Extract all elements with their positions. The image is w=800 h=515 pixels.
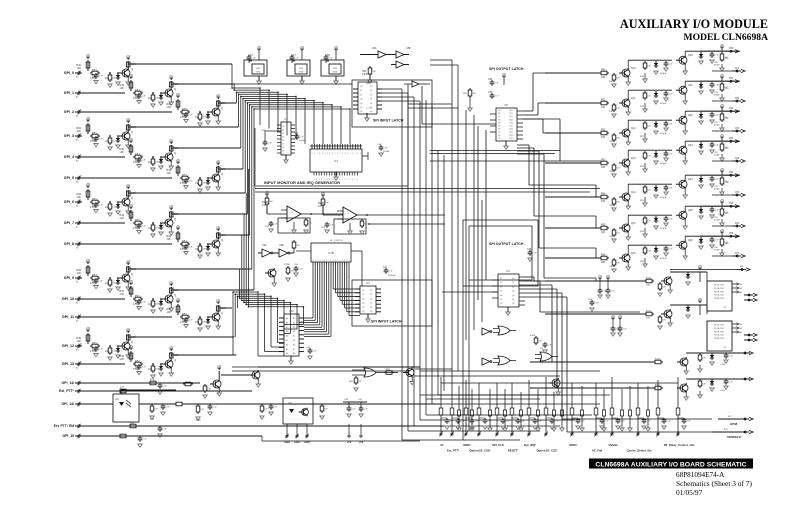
svg-text:+5V: +5V: [86, 117, 91, 120]
svg-text:D1: D1: [498, 113, 500, 115]
svg-text:10K: 10K: [601, 76, 606, 79]
svg-text:R51: R51: [92, 68, 97, 72]
svg-text:3: 3: [342, 260, 343, 262]
svg-text:2: 2: [317, 153, 318, 155]
svg-text:GND: GND: [304, 440, 310, 444]
svg-text:6: 6: [327, 153, 328, 155]
svg-text:10K: 10K: [105, 140, 110, 143]
svg-text:GPI_5: GPI_5: [64, 176, 74, 180]
svg-text:10K: 10K: [166, 171, 171, 175]
svg-text:D0: D0: [370, 290, 372, 292]
svg-text:R51: R51: [182, 239, 187, 243]
svg-text:7: 7: [329, 153, 330, 155]
svg-text:10K: 10K: [148, 227, 153, 230]
svg-text:D6: D6: [500, 303, 502, 305]
svg-text:10K: 10K: [148, 303, 153, 306]
svg-text:D4: D4: [282, 140, 284, 142]
svg-text:Q13: Q13: [631, 157, 636, 160]
svg-text:470pF: 470pF: [714, 155, 720, 157]
svg-text:R76: R76: [150, 379, 155, 382]
svg-text:OQ4: OQ4: [509, 122, 513, 124]
svg-text:10K: 10K: [105, 282, 110, 285]
svg-text:OQ0: OQ0: [509, 110, 513, 112]
svg-text:10K: 10K: [609, 266, 613, 268]
svg-text:470pF: 470pF: [133, 227, 140, 230]
svg-text:D5: D5: [500, 299, 502, 301]
svg-text:10K: 10K: [166, 237, 171, 241]
svg-text:10K: 10K: [174, 147, 179, 150]
svg-text:10K: 10K: [195, 182, 200, 185]
svg-text:R110: R110: [655, 359, 661, 361]
svg-text:D1: D1: [370, 90, 372, 92]
svg-text:10K: 10K: [105, 206, 110, 209]
svg-text:Carrier_Detect_Sw: Carrier_Detect_Sw: [627, 449, 653, 453]
svg-text:+5V: +5V: [611, 315, 616, 318]
svg-text:3: 3: [345, 153, 346, 155]
svg-text:+5V: +5V: [720, 104, 725, 107]
svg-text:R51: R51: [92, 341, 97, 345]
svg-text:Q: Q: [131, 340, 133, 344]
svg-text:1: 1: [337, 260, 338, 262]
svg-text:2: 2: [340, 260, 341, 262]
svg-text:+5V: +5V: [598, 275, 603, 278]
svg-text:Q: Q: [131, 67, 133, 71]
svg-text:GPI_4: GPI_4: [64, 155, 74, 159]
svg-text:10K: 10K: [601, 231, 606, 234]
svg-text:U2: U2: [284, 117, 288, 121]
svg-text:10K: 10K: [131, 336, 136, 339]
svg-text:F66: F66: [735, 222, 740, 225]
svg-text:OQ9: OQ9: [509, 138, 513, 140]
svg-text:CLN6698A AUXILIARY I/O BOARD S: CLN6698A AUXILIARY I/O BOARD SCHEMATIC: [595, 461, 746, 468]
svg-text:A2: A2: [740, 287, 742, 290]
svg-text:6: 6: [349, 260, 350, 262]
svg-text:10K: 10K: [609, 205, 613, 207]
svg-text:470pF: 470pF: [90, 350, 97, 353]
svg-text:Q: Q: [131, 130, 133, 134]
svg-text:4: 4: [344, 260, 345, 262]
svg-text:D3: D3: [500, 291, 502, 293]
svg-text:GPI_6: GPI_6: [64, 200, 74, 204]
svg-text:470pF: 470pF: [180, 321, 187, 324]
svg-text:GPI_10: GPI_10: [62, 297, 74, 301]
svg-text:470pF: 470pF: [660, 103, 667, 105]
svg-text:470pF: 470pF: [660, 133, 667, 135]
svg-text:Q3: Q3: [360, 99, 362, 101]
svg-text:68P81094E74-A: 68P81094E74-A: [676, 471, 725, 479]
svg-text:470pF: 470pF: [133, 303, 140, 306]
svg-text:GND: GND: [333, 72, 338, 74]
svg-text:+5V: +5V: [606, 275, 611, 278]
svg-text:10K: 10K: [174, 83, 179, 86]
svg-text:R112: R112: [646, 278, 652, 280]
svg-text:10K: 10K: [601, 261, 606, 264]
svg-text:SPI INPUT LATCH: SPI INPUT LATCH: [371, 320, 402, 324]
svg-text:B3: B3: [293, 331, 295, 333]
svg-text:NO1A CM1: NO1A CM1: [714, 287, 725, 290]
svg-text:GPI_2: GPI_2: [64, 110, 74, 114]
svg-text:10K: 10K: [609, 81, 613, 83]
svg-text:4: 4: [342, 179, 343, 181]
svg-text:Q6: Q6: [360, 111, 362, 113]
svg-text:A2: A2: [740, 327, 742, 330]
svg-text:GPI_13: GPI_13: [62, 362, 74, 366]
svg-text:GPI_3: GPI_3: [64, 134, 74, 138]
svg-text:A3: A3: [286, 330, 288, 333]
svg-text:3: 3: [319, 260, 320, 262]
svg-text:01/05/97: 01/05/97: [676, 488, 703, 497]
svg-text:D4: D4: [370, 307, 372, 309]
svg-text:R65: R65: [601, 224, 606, 227]
svg-text:10K: 10K: [609, 236, 613, 238]
svg-text:D5: D5: [282, 144, 284, 146]
svg-text:P64: P64: [729, 171, 734, 174]
svg-text:470pF: 470pF: [90, 206, 97, 209]
svg-text:Q2: Q2: [362, 298, 364, 300]
svg-text:Opt_IRQ*: Opt_IRQ*: [524, 443, 537, 447]
svg-text:10K: 10K: [609, 111, 613, 113]
svg-text:5: 5: [324, 153, 325, 155]
svg-text:+5V: +5V: [169, 205, 174, 208]
svg-text:+5V: +5V: [176, 225, 181, 228]
svg-text:+5V: +5V: [216, 94, 221, 97]
svg-text:A7: A7: [286, 348, 288, 351]
svg-text:100K: 100K: [362, 73, 368, 76]
svg-text:C96: C96: [527, 248, 532, 251]
svg-text:B8: B8: [293, 353, 295, 355]
svg-text:U1: U1: [334, 159, 338, 163]
svg-text:U8B: U8B: [406, 47, 411, 50]
svg-text:Option1/2_CS0*: Option1/2_CS0*: [470, 449, 492, 453]
svg-text:+5V: +5V: [86, 183, 91, 186]
svg-text:NO1A CM1: NO1A CM1: [714, 334, 725, 337]
svg-text:B0: B0: [293, 318, 295, 320]
svg-text:A1: A1: [286, 321, 288, 324]
svg-text:R51: R51: [135, 218, 140, 222]
svg-text:D8: D8: [498, 135, 500, 137]
svg-text:B1: B1: [293, 322, 295, 324]
svg-text:6: 6: [347, 179, 348, 181]
svg-text:10K: 10K: [609, 141, 613, 143]
svg-text:10K: 10K: [131, 268, 136, 271]
svg-text:Q4: Q4: [360, 103, 362, 105]
svg-text:10K: 10K: [131, 126, 136, 129]
svg-text:10K: 10K: [131, 63, 136, 66]
svg-text:Q24: Q24: [688, 178, 693, 181]
svg-text:9: 9: [354, 179, 355, 181]
svg-text:10K: 10K: [76, 339, 81, 343]
svg-text:Q3: Q3: [362, 303, 364, 305]
svg-text:GPI_11: GPI_11: [62, 315, 74, 319]
svg-text:0: 0: [313, 260, 314, 262]
svg-text:D3: D3: [282, 137, 284, 139]
svg-text:U6A: U6A: [262, 244, 267, 247]
svg-text:3: 3: [319, 153, 320, 155]
svg-text:Q: Q: [174, 293, 176, 297]
svg-text:SPI OUTPUT LATCH: SPI OUTPUT LATCH: [489, 242, 524, 246]
svg-text:R62: R62: [601, 129, 606, 132]
svg-text:Q0: Q0: [360, 86, 362, 88]
svg-text:AC_Fail: AC_Fail: [592, 449, 603, 453]
svg-text:470pF: 470pF: [660, 258, 667, 260]
svg-text:D7: D7: [498, 132, 500, 134]
svg-text:Q20: Q20: [688, 54, 693, 57]
svg-text:R51: R51: [182, 312, 187, 316]
svg-text:Ext_PTT*: Ext_PTT*: [447, 449, 460, 453]
svg-text:Q6: Q6: [512, 303, 514, 305]
svg-text:Q2: Q2: [360, 94, 362, 96]
svg-text:9: 9: [333, 260, 334, 262]
svg-text:D0: D0: [498, 110, 500, 112]
svg-text:8: 8: [352, 179, 353, 181]
svg-text:Q: Q: [221, 106, 223, 110]
svg-text:S_CLK: S_CLK: [366, 108, 372, 110]
svg-text:GP08: GP08: [730, 422, 738, 426]
svg-text:C47: C47: [383, 266, 388, 269]
svg-text:D3: D3: [370, 99, 372, 101]
svg-text:+5V: +5V: [216, 299, 221, 302]
svg-text:Q: Q: [131, 272, 133, 276]
svg-text:10K: 10K: [119, 292, 124, 296]
svg-text:10K: 10K: [221, 307, 226, 310]
svg-text:10K: 10K: [609, 171, 613, 173]
svg-text:+5V: +5V: [698, 265, 703, 268]
svg-text:Q1: Q1: [362, 294, 364, 296]
svg-text:470pF: 470pF: [180, 182, 187, 185]
svg-text:A2: A2: [286, 326, 288, 329]
svg-text:+5V: +5V: [126, 328, 131, 331]
svg-text:Q1: Q1: [512, 282, 514, 284]
svg-text:GND: GND: [294, 440, 300, 444]
svg-text:U4: U4: [366, 81, 370, 85]
svg-text:B7: B7: [293, 349, 295, 351]
svg-text:NO1A CM1: NO1A CM1: [714, 297, 725, 300]
svg-text:GPI_8: GPI_8: [64, 242, 74, 246]
svg-text:2200pF: 2200pF: [299, 140, 307, 142]
svg-text:10K: 10K: [166, 310, 171, 314]
svg-text:NO1A CM1: NO1A CM1: [714, 284, 725, 287]
svg-text:B2: B2: [293, 327, 295, 329]
svg-text:MOSI: MOSI: [569, 443, 576, 447]
svg-text:470pF: 470pF: [660, 163, 667, 165]
svg-text:A1: A1: [740, 283, 742, 286]
svg-text:OQ6: OQ6: [509, 129, 513, 131]
svg-text:470pF: 470pF: [133, 161, 140, 164]
svg-text:R51: R51: [92, 273, 97, 277]
svg-text:Ext_PTT*: Ext_PTT*: [59, 389, 75, 393]
svg-text:7: 7: [328, 260, 329, 262]
svg-text:Schematics (Sheet 3 of 7): Schematics (Sheet 3 of 7): [676, 479, 752, 488]
svg-text:C101: C101: [720, 390, 726, 392]
svg-text:Ext_PTT / EM: Ext_PTT / EM: [54, 424, 75, 428]
svg-text:Option1/2_CS2*: Option1/2_CS2*: [537, 449, 559, 453]
svg-text:P63: P63: [729, 137, 734, 140]
svg-text:470pF: 470pF: [714, 189, 720, 191]
svg-text:+5V: +5V: [347, 440, 352, 444]
svg-text:F61: F61: [735, 67, 740, 70]
svg-text:+5V: +5V: [698, 298, 703, 301]
svg-text:10K: 10K: [131, 192, 136, 195]
svg-text:2: 2: [342, 153, 343, 155]
svg-text:10K: 10K: [174, 354, 179, 357]
svg-text:MISO: MISO: [463, 443, 471, 447]
svg-text:47K: 47K: [318, 205, 323, 208]
svg-text:5: 5: [344, 179, 345, 181]
svg-text:R51: R51: [135, 152, 140, 156]
svg-text:U6: U6: [506, 269, 510, 273]
svg-text:D8: D8: [282, 154, 284, 156]
svg-text:Q22: Q22: [688, 114, 693, 117]
svg-text:A1: A1: [740, 323, 742, 326]
svg-text:A3: A3: [740, 291, 742, 294]
svg-text:470pF: 470pF: [180, 116, 187, 119]
svg-text:Q16: Q16: [631, 252, 636, 255]
svg-text:10K: 10K: [119, 216, 124, 220]
svg-text:+5V: +5V: [129, 345, 134, 348]
svg-text:0: 0: [357, 179, 358, 181]
svg-text:R63: R63: [601, 159, 606, 162]
svg-text:+5V: +5V: [216, 160, 221, 163]
svg-text:470pF: 470pF: [180, 248, 187, 251]
svg-text:R51: R51: [182, 173, 187, 177]
svg-text:Q12: Q12: [631, 127, 636, 130]
svg-text:7: 7: [355, 153, 356, 155]
svg-text:R80: R80: [196, 419, 201, 422]
svg-text:C4A: C4A: [261, 129, 266, 132]
svg-text:GPI_9: GPI_9: [64, 276, 74, 280]
svg-text:R61: R61: [601, 99, 606, 102]
svg-text:SPI_CLK: SPI_CLK: [492, 443, 504, 447]
svg-text:+5V: +5V: [720, 199, 725, 202]
svg-text:Q5: Q5: [512, 299, 514, 301]
svg-text:GND: GND: [284, 440, 290, 444]
svg-text:Q: Q: [221, 172, 223, 176]
svg-text:NO1A CM1: NO1A CM1: [714, 330, 725, 333]
svg-text:Q: Q: [174, 87, 176, 91]
svg-text:8: 8: [331, 260, 332, 262]
svg-text:1: 1: [315, 260, 316, 262]
svg-text:R60: R60: [601, 69, 606, 72]
svg-text:NO1A CM1: NO1A CM1: [714, 324, 725, 327]
svg-text:Q: Q: [174, 151, 176, 155]
svg-text:RxStat: RxStat: [609, 443, 618, 447]
svg-text:10K: 10K: [76, 271, 81, 275]
svg-text:Q4: Q4: [362, 307, 364, 309]
svg-text:10K: 10K: [148, 368, 153, 371]
svg-text:Q: Q: [221, 311, 223, 315]
svg-text:10K: 10K: [601, 166, 606, 169]
svg-text:8: 8: [332, 153, 333, 155]
svg-text:R51: R51: [135, 359, 140, 363]
svg-text:Q0: Q0: [362, 290, 364, 292]
svg-text:OQ1: OQ1: [509, 113, 513, 115]
svg-text:U9: U9: [115, 397, 119, 401]
svg-text:470pF: 470pF: [90, 282, 97, 285]
svg-text:D6: D6: [282, 147, 284, 149]
svg-text:4: 4: [322, 260, 323, 262]
svg-text:D6: D6: [370, 111, 372, 113]
svg-text:F63: F63: [735, 127, 740, 130]
svg-text:B6: B6: [293, 344, 295, 346]
svg-text:F62: F62: [735, 97, 740, 100]
svg-text:10K: 10K: [148, 161, 153, 164]
svg-text:+5V: +5V: [129, 204, 134, 207]
svg-text:+5V: +5V: [720, 74, 725, 77]
svg-text:10K: 10K: [195, 248, 200, 251]
svg-text:470pF: 470pF: [714, 95, 720, 97]
svg-text:SPAREA17: SPAREA17: [727, 435, 742, 439]
svg-text:5: 5: [346, 260, 347, 262]
svg-text:NO1A CM1: NO1A CM1: [714, 290, 725, 293]
svg-text:0: 0: [337, 153, 338, 155]
svg-text:Q5: Q5: [362, 311, 364, 313]
svg-text:+5V: +5V: [502, 73, 507, 76]
svg-text:NO1A CM1: NO1A CM1: [714, 337, 725, 340]
svg-text:+5V: +5V: [86, 54, 91, 57]
svg-text:Q2: Q2: [512, 286, 514, 288]
svg-text:+5V: +5V: [129, 280, 134, 283]
svg-text:U7B: U7B: [328, 251, 334, 255]
svg-text:B4: B4: [293, 336, 295, 338]
svg-text:R112: R112: [646, 311, 652, 313]
svg-text:2200pF: 2200pF: [388, 275, 396, 277]
svg-text:10K: 10K: [195, 321, 200, 324]
svg-text:P65: P65: [729, 202, 734, 205]
svg-text:U5: U5: [504, 103, 508, 107]
svg-text:9: 9: [334, 153, 335, 155]
svg-text:470pF: 470pF: [660, 228, 667, 230]
svg-text:10K: 10K: [174, 213, 179, 216]
svg-text:D2: D2: [370, 94, 372, 96]
svg-text:C95: C95: [488, 91, 493, 94]
svg-text:D3: D3: [370, 303, 372, 305]
svg-text:D5: D5: [498, 126, 500, 128]
svg-text:+5V: +5V: [176, 298, 181, 301]
svg-text:470pF: 470pF: [714, 250, 720, 252]
svg-text:7: 7: [349, 179, 350, 181]
svg-text:D0: D0: [370, 86, 372, 88]
svg-text:+5V: +5V: [720, 44, 725, 47]
svg-text:OQ2: OQ2: [509, 116, 513, 118]
svg-text:Q: Q: [174, 217, 176, 221]
svg-text:470pF: 470pF: [714, 220, 720, 222]
svg-text:+5V: +5V: [129, 74, 134, 77]
svg-text:D2: D2: [370, 298, 372, 300]
svg-text:A4: A4: [286, 335, 288, 338]
svg-text:5: 5: [350, 153, 351, 155]
svg-text:6: 6: [326, 260, 327, 262]
svg-text:R51: R51: [92, 131, 97, 135]
svg-text:10K: 10K: [148, 97, 153, 100]
svg-text:+5V: +5V: [720, 168, 725, 171]
svg-text:+5V: +5V: [176, 159, 181, 162]
svg-text:2200pF: 2200pF: [383, 151, 391, 153]
svg-text:+5V: +5V: [169, 346, 174, 349]
svg-text:+5V: +5V: [169, 281, 174, 284]
svg-text:D9: D9: [498, 138, 500, 140]
svg-text:C100: C100: [720, 364, 726, 366]
svg-text:P62: P62: [729, 107, 734, 110]
svg-text:GPI_14/: GPI_14/: [62, 402, 74, 406]
svg-text:9: 9: [360, 153, 361, 155]
svg-text:2: 2: [317, 260, 318, 262]
svg-text:U10: U10: [289, 310, 294, 313]
svg-text:GND: GND: [299, 72, 304, 74]
svg-text:470pF: 470pF: [714, 65, 720, 67]
svg-text:4: 4: [347, 153, 348, 155]
svg-text:D1: D1: [500, 282, 502, 284]
svg-text:470pF: 470pF: [660, 73, 667, 75]
